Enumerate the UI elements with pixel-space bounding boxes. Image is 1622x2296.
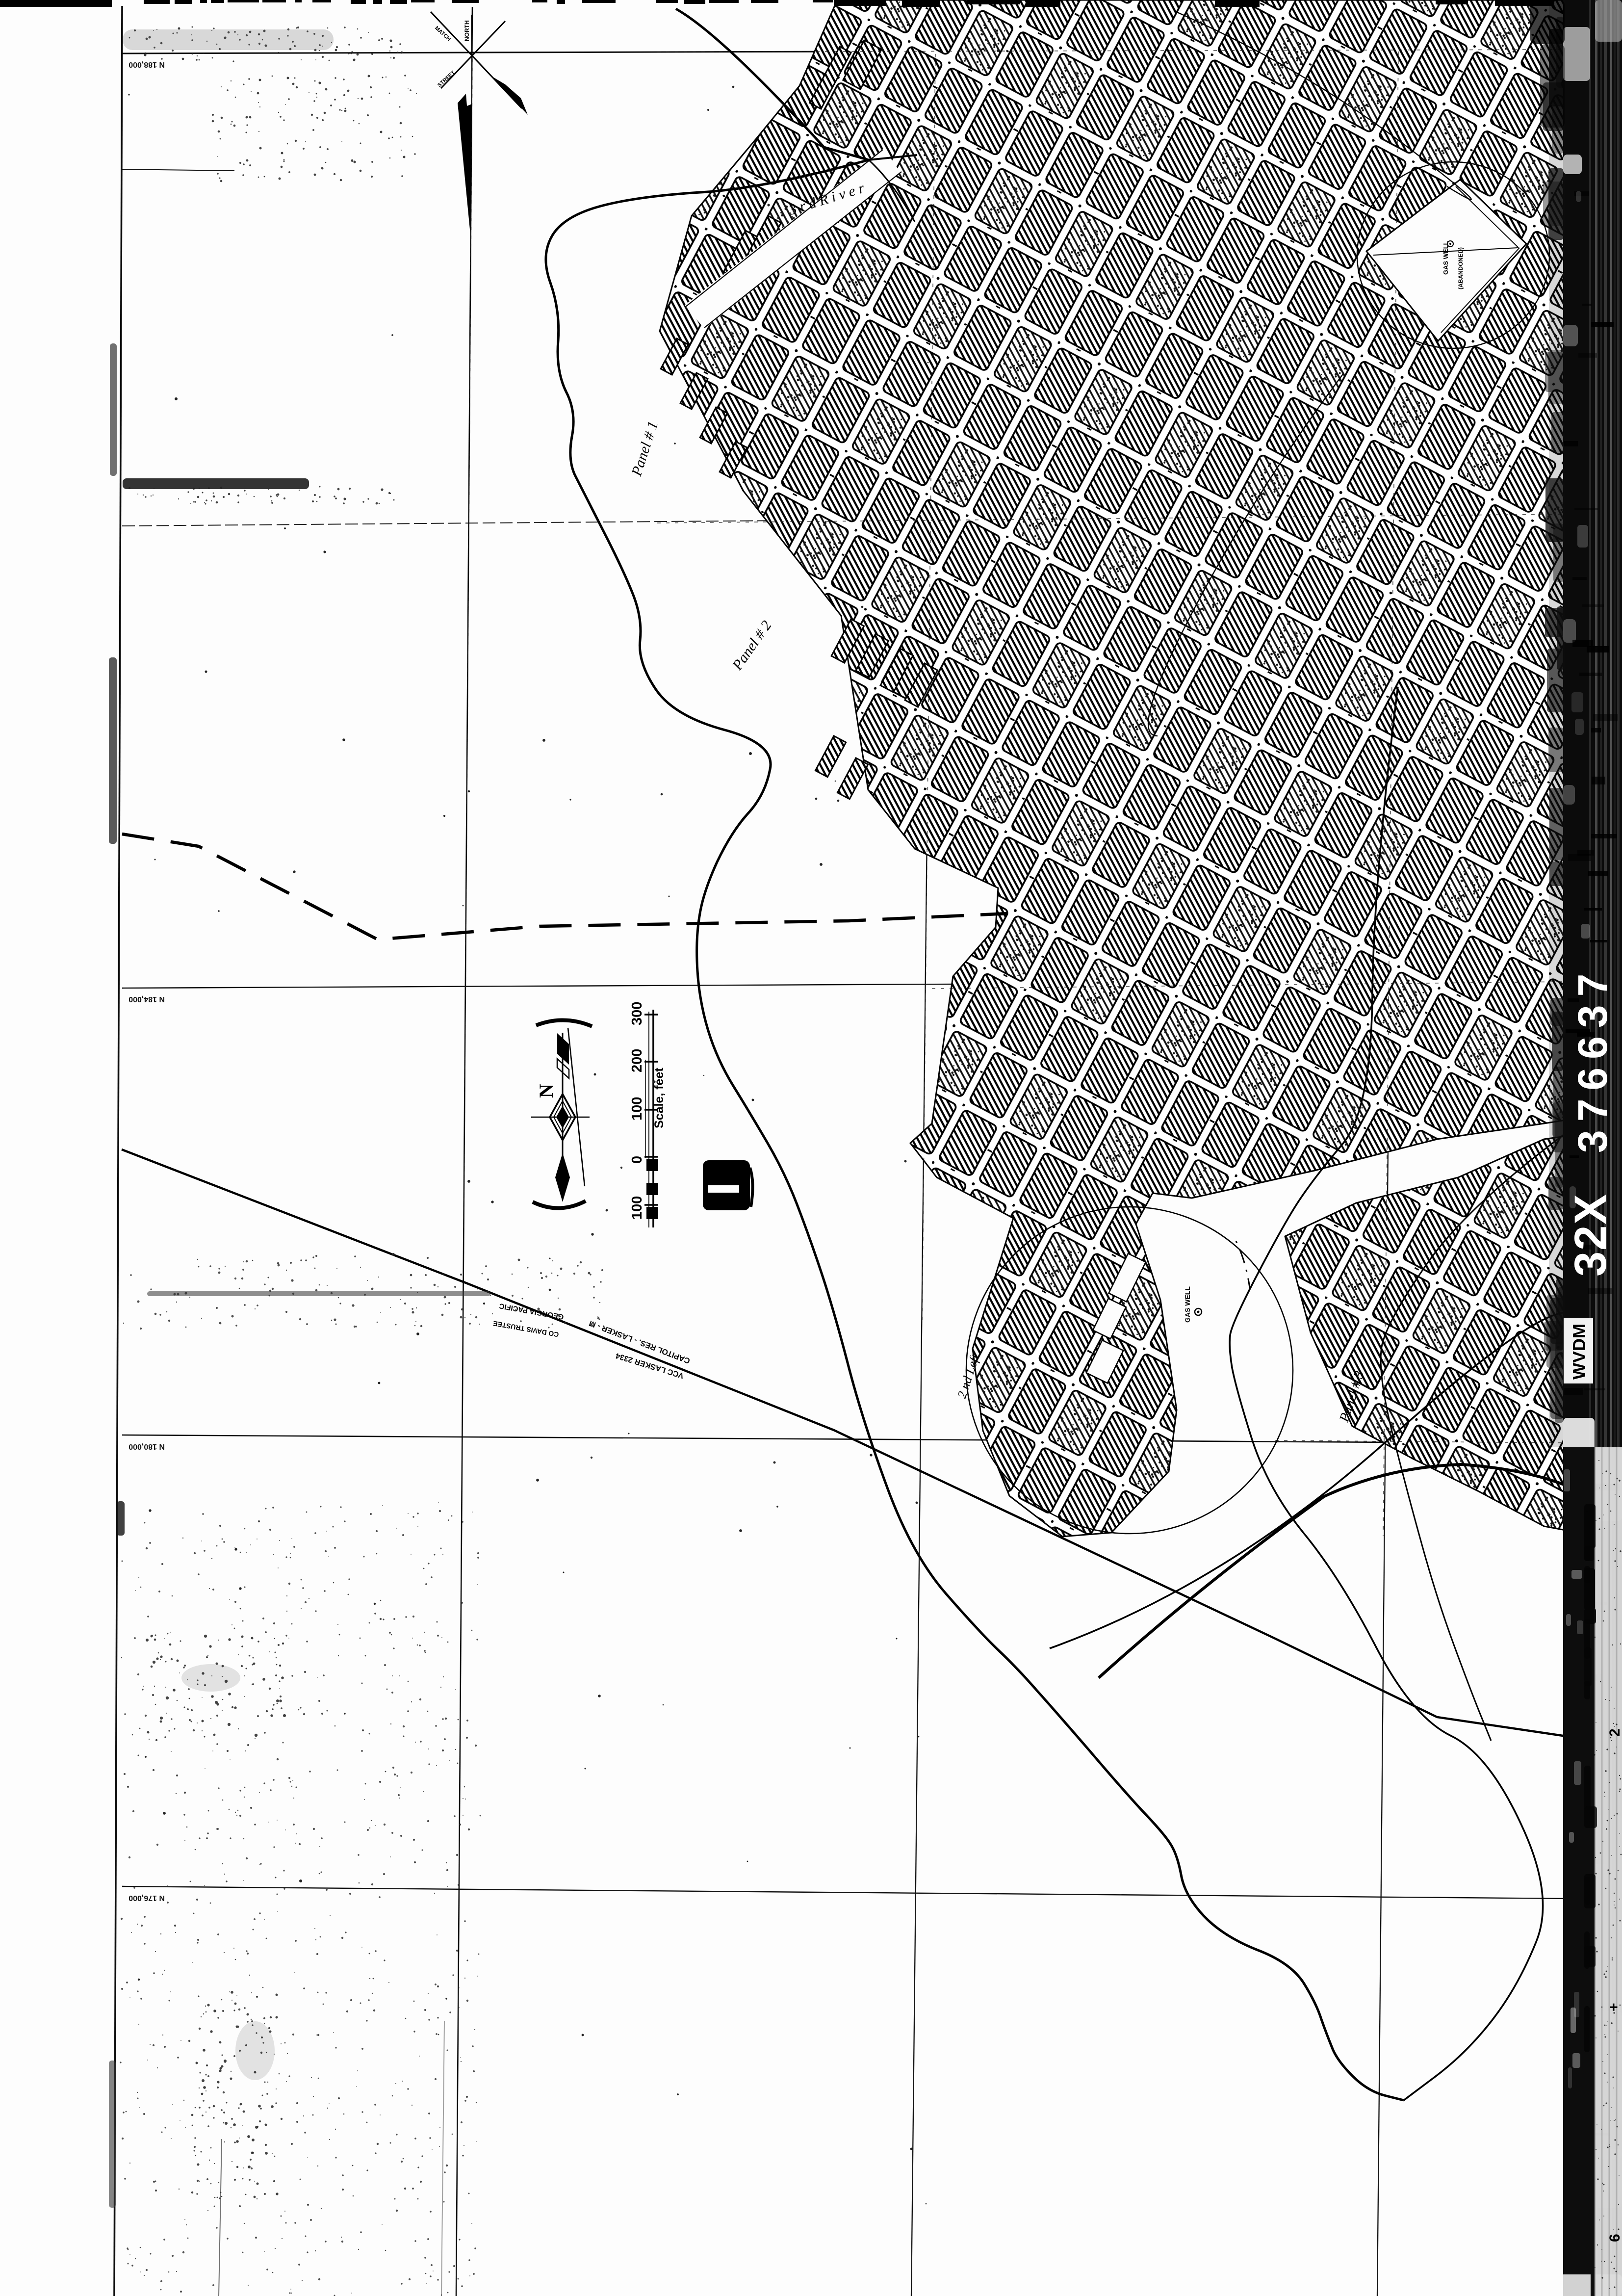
svg-text:NORTH: NORTH [463,20,470,41]
svg-text:WVDM: WVDM [1569,1324,1589,1380]
svg-text:N 180,000: N 180,000 [129,1442,165,1451]
svg-text:N 176,000: N 176,000 [129,1894,165,1902]
svg-text:300: 300 [629,1002,645,1025]
svg-text:(ABANDONED): (ABANDONED) [1457,247,1464,289]
svg-text:N 184,000: N 184,000 [129,995,165,1003]
svg-text:200: 200 [629,1049,645,1072]
svg-text:32X: 32X [1566,1193,1616,1277]
svg-text:100: 100 [629,1097,645,1121]
svg-text:376637: 376637 [1570,965,1616,1153]
svg-text:N 188,000: N 188,000 [129,60,165,69]
svg-text:2: 2 [1607,1728,1622,1737]
svg-text:GAS WELL: GAS WELL [1184,1286,1191,1323]
svg-text:100: 100 [629,1196,645,1220]
svg-text:+: + [1606,2003,1622,2011]
svg-text:0: 0 [629,1156,645,1164]
svg-text:6: 6 [1607,2234,1622,2242]
svg-text:N: N [535,1084,557,1098]
svg-text:Scale, feet: Scale, feet [652,1068,666,1128]
